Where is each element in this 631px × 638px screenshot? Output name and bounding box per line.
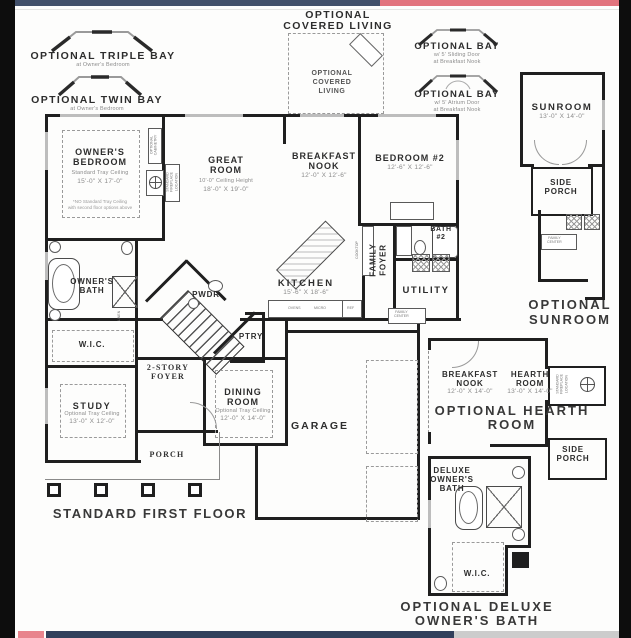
- room-side-porch-b-1: SIDE: [562, 446, 584, 454]
- washer: [412, 254, 430, 272]
- window: [185, 114, 243, 117]
- cooktop-label: COOKTOP: [355, 241, 359, 259]
- family-center-line2: CENTER: [394, 314, 409, 318]
- right-edge-bar: [619, 0, 631, 638]
- wall-segment: [520, 72, 523, 165]
- atrium-bay-title: OPTIONAL BAY: [414, 90, 499, 100]
- room-kitchen: KITCHEN: [278, 279, 334, 289]
- covered-living-inner-3: LIVING: [319, 88, 346, 95]
- optional-hearth-label-2: ROOM: [488, 418, 536, 431]
- wall-segment: [490, 444, 548, 447]
- wall-segment: [45, 365, 138, 368]
- room-deluxe-bath-1: DELUXE: [433, 467, 470, 475]
- porch-edge: [45, 479, 220, 480]
- sink: [49, 241, 61, 253]
- wall-segment: [358, 114, 361, 226]
- wall-segment: [230, 360, 265, 363]
- wic-outline: [452, 542, 504, 592]
- room-great-room-2: ROOM: [210, 166, 242, 175]
- sliding-bay-sub2: at Breakfast Nook: [433, 60, 480, 66]
- porch-edge: [219, 432, 220, 480]
- room-family-foyer: FAMILY FOYER: [368, 243, 387, 276]
- door-arc: [452, 341, 479, 368]
- study-sub: Optional Tray Ceiling: [64, 412, 119, 418]
- room-powder: PWDR: [192, 291, 220, 299]
- wall-segment: [283, 114, 286, 144]
- owners-bedroom-note-1: *NO Standard Tray Ceiling: [73, 200, 127, 205]
- optional-hearth-label-1: OPTIONAL HEARTH: [435, 404, 590, 417]
- twin-bay-subtitle: at Owner's Bedroom: [70, 107, 124, 113]
- wall-segment: [45, 238, 165, 241]
- dryer: [432, 254, 450, 272]
- garage-option-outline: [366, 360, 418, 454]
- porch-column: [94, 483, 108, 497]
- sink: [188, 298, 199, 309]
- optional-tie-in-wall: [428, 341, 429, 443]
- breakfast-nook-dims: 12'-0" X 12'-6": [301, 173, 347, 180]
- great-room-dims: 18'-0" X 19'-0": [203, 187, 249, 194]
- twin-bay-title: OPTIONAL TWIN BAY: [31, 95, 163, 106]
- sink: [512, 466, 525, 479]
- wall-segment: [520, 72, 605, 75]
- wall-segment: [428, 593, 508, 596]
- room-hearth-breakfast-1: BREAKFAST: [442, 371, 498, 379]
- room-hearth-breakfast-2: NOOK: [456, 380, 483, 388]
- family-foyer-line1: FAMILY: [368, 243, 377, 276]
- door-arc: [534, 140, 559, 165]
- fireplace-note: STANDARD FIREPLACE LOCATION: [555, 367, 568, 401]
- room-dining-2: ROOM: [227, 398, 259, 407]
- wall-fill: [512, 552, 529, 568]
- fireplace-note: STANDARD FIREPLACE LOCATION: [165, 165, 178, 199]
- room-garage: GARAGE: [291, 421, 349, 432]
- optional-deluxe-label-2: OWNER'S BATH: [415, 614, 539, 627]
- toilet: [121, 241, 133, 255]
- dining-dims: 12'-0" X 14'-0": [220, 416, 266, 423]
- study-dims: 13'-0" X 12'-0": [69, 419, 115, 426]
- wall-segment: [545, 338, 548, 369]
- wall-segment: [428, 432, 431, 444]
- window: [45, 132, 48, 170]
- wall-segment: [45, 460, 141, 463]
- door-arc: [190, 402, 217, 429]
- room-owners-bath-2: BATH: [80, 287, 105, 295]
- covered-living-inner-2: COVERED: [313, 79, 352, 86]
- room-dining-1: DINING: [224, 388, 262, 397]
- porch-column: [141, 483, 155, 497]
- wall-segment: [538, 279, 588, 282]
- room-foyer-1: 2-STORY: [147, 364, 189, 372]
- room-hearth-room-1: HEARTH: [511, 371, 549, 379]
- optional-sunroom-label-1: OPTIONAL: [528, 298, 611, 311]
- toilet: [414, 240, 426, 255]
- wall-segment: [505, 545, 531, 548]
- room-side-porch-a-2: PORCH: [545, 188, 578, 196]
- wall-segment: [428, 338, 431, 350]
- room-bath-2-1: BATH: [430, 226, 451, 233]
- owners-bedroom-dims: 15'-0" X 17'-0": [77, 179, 123, 186]
- hearth-breakfast-dims: 12'-0" X 14'-0": [447, 389, 493, 396]
- atrium-bay-sub1: w/ 5' Atrium Door: [434, 101, 479, 107]
- shower: [112, 276, 138, 308]
- room-sunroom: SUNROOM: [532, 103, 593, 113]
- room-side-porch-a-1: SIDE: [550, 179, 572, 187]
- wall-segment: [285, 357, 288, 445]
- great-room-sub: 10'-0" Ceiling Height: [199, 179, 253, 185]
- family-center-line1: FAMILY: [548, 236, 561, 240]
- triple-bay-title: OPTIONAL TRIPLE BAY: [30, 51, 175, 62]
- room-deluxe-bath-3: BATH: [440, 485, 465, 493]
- hearth-room-dims: 13'-0" X 14'-0": [507, 389, 553, 396]
- left-edge-bar: [0, 0, 15, 638]
- triple-bay-subtitle: at Owner's Bedroom: [76, 63, 130, 69]
- window: [602, 100, 605, 130]
- room-owners-bedroom-2: BEDROOM: [73, 158, 127, 167]
- garage-option-outline: [366, 466, 418, 522]
- wall-segment: [45, 318, 163, 321]
- floor-plan-page: OPTIONAL TRIPLE BAY at Owner's Bedroom O…: [0, 0, 631, 638]
- window: [456, 140, 459, 180]
- deluxe-shower: [486, 486, 522, 528]
- closet: [390, 202, 434, 220]
- wall-segment: [285, 318, 288, 360]
- sink: [49, 309, 61, 321]
- room-owners-bath-1: OWNER'S: [70, 278, 114, 286]
- sunroom-dims: 13'-0" X 14'-0": [539, 114, 585, 121]
- washer: [566, 214, 582, 230]
- kitchen-counter: [268, 300, 344, 318]
- fireplace-icon: [149, 176, 162, 189]
- family-center-line1: FAMILY: [395, 310, 408, 314]
- family-center-label: FAMILY CENTER: [547, 236, 562, 245]
- bottom-bar-navy: [46, 631, 454, 638]
- atrium-bay-sub2: at Breakfast Nook: [433, 108, 480, 114]
- dining-sub: Optional Tray Ceiling: [215, 409, 270, 415]
- toilet: [434, 576, 447, 591]
- wall-segment: [428, 456, 531, 459]
- room-deluxe-bath-2: OWNER'S: [430, 476, 474, 484]
- ref-label: REF: [347, 306, 354, 310]
- room-foyer-2: FOYER: [151, 373, 185, 381]
- family-center-line2: CENTER: [547, 240, 562, 244]
- sink: [512, 528, 525, 541]
- window: [45, 388, 48, 424]
- wall-segment: [505, 545, 508, 596]
- porch-column: [188, 483, 202, 497]
- wall-segment: [255, 443, 258, 520]
- window: [300, 114, 344, 117]
- room-porch: PORCH: [150, 451, 185, 459]
- window: [378, 114, 436, 117]
- family-center-label: FAMILY CENTER: [394, 310, 409, 319]
- wall-segment: [135, 238, 138, 462]
- sliding-bay-sub1: w/ 5' Sliding Door: [434, 53, 480, 59]
- wall-segment: [528, 456, 531, 548]
- wall-segment: [602, 167, 605, 300]
- room-great-room-1: GREAT: [208, 156, 244, 165]
- room-bedroom-2: BEDROOM #2: [375, 154, 445, 163]
- top-bar-red: [380, 0, 619, 6]
- wall-segment: [138, 430, 218, 433]
- room-pantry: PTRY: [239, 333, 263, 341]
- fireplace-icon: [580, 377, 595, 392]
- porch-column: [47, 483, 61, 497]
- deluxe-bathtub-basin: [459, 491, 478, 524]
- wall-segment: [428, 338, 548, 341]
- room-breakfast-nook-1: BREAKFAST: [292, 152, 356, 161]
- kitchen-dims: 15'-6" X 18'-6": [283, 290, 329, 297]
- covered-living-inner-1: OPTIONAL: [312, 70, 353, 77]
- room-owners-bedroom-1: OWNER'S: [75, 148, 125, 157]
- optional-sunroom-label-2: SUNROOM: [529, 313, 611, 326]
- owners-bedroom-note-2: with second floor options above: [68, 206, 132, 211]
- bedroom-2-dims: 12'-6" X 12'-6": [387, 165, 433, 172]
- window: [60, 114, 100, 117]
- door-arc: [562, 140, 587, 165]
- covered-living-heading-1: OPTIONAL: [305, 10, 370, 21]
- bottom-bar-gray: [454, 631, 619, 638]
- room-breakfast-nook-2: NOOK: [309, 162, 340, 171]
- optional-deluxe-label-1: OPTIONAL DELUXE: [400, 600, 553, 613]
- window: [428, 500, 431, 528]
- room-side-porch-b-2: PORCH: [557, 455, 590, 463]
- room-wic-deluxe: W.I.C.: [464, 570, 491, 578]
- sliding-bay-title: OPTIONAL BAY: [414, 42, 499, 52]
- top-bar-navy: [15, 0, 380, 6]
- micro-label: MICRO: [314, 306, 326, 310]
- room-bath-2-2: #2: [437, 234, 446, 241]
- room-wic: W.I.C.: [79, 341, 106, 349]
- covered-living-heading-2: COVERED LIVING: [283, 21, 392, 32]
- room-utility: UTILITY: [402, 286, 449, 296]
- wall-segment: [288, 330, 420, 333]
- optional-cabinetry-note: OPTIONAL CABINETRY: [150, 130, 159, 160]
- room-study: STUDY: [73, 402, 112, 411]
- room-hearth-room-2: ROOM: [516, 380, 544, 388]
- vanity: [396, 226, 412, 256]
- floor-plan-title: STANDARD FIRST FLOOR: [53, 507, 247, 520]
- linen-label: LINEN: [117, 311, 121, 322]
- wall-segment: [203, 443, 288, 446]
- ovens-label: OVENS: [288, 306, 301, 310]
- family-foyer-line2: FOYER: [378, 244, 387, 276]
- owners-bedroom-sub: Standard Tray Ceiling: [71, 171, 128, 177]
- bottom-bar-pink: [18, 631, 44, 638]
- dryer: [584, 214, 600, 230]
